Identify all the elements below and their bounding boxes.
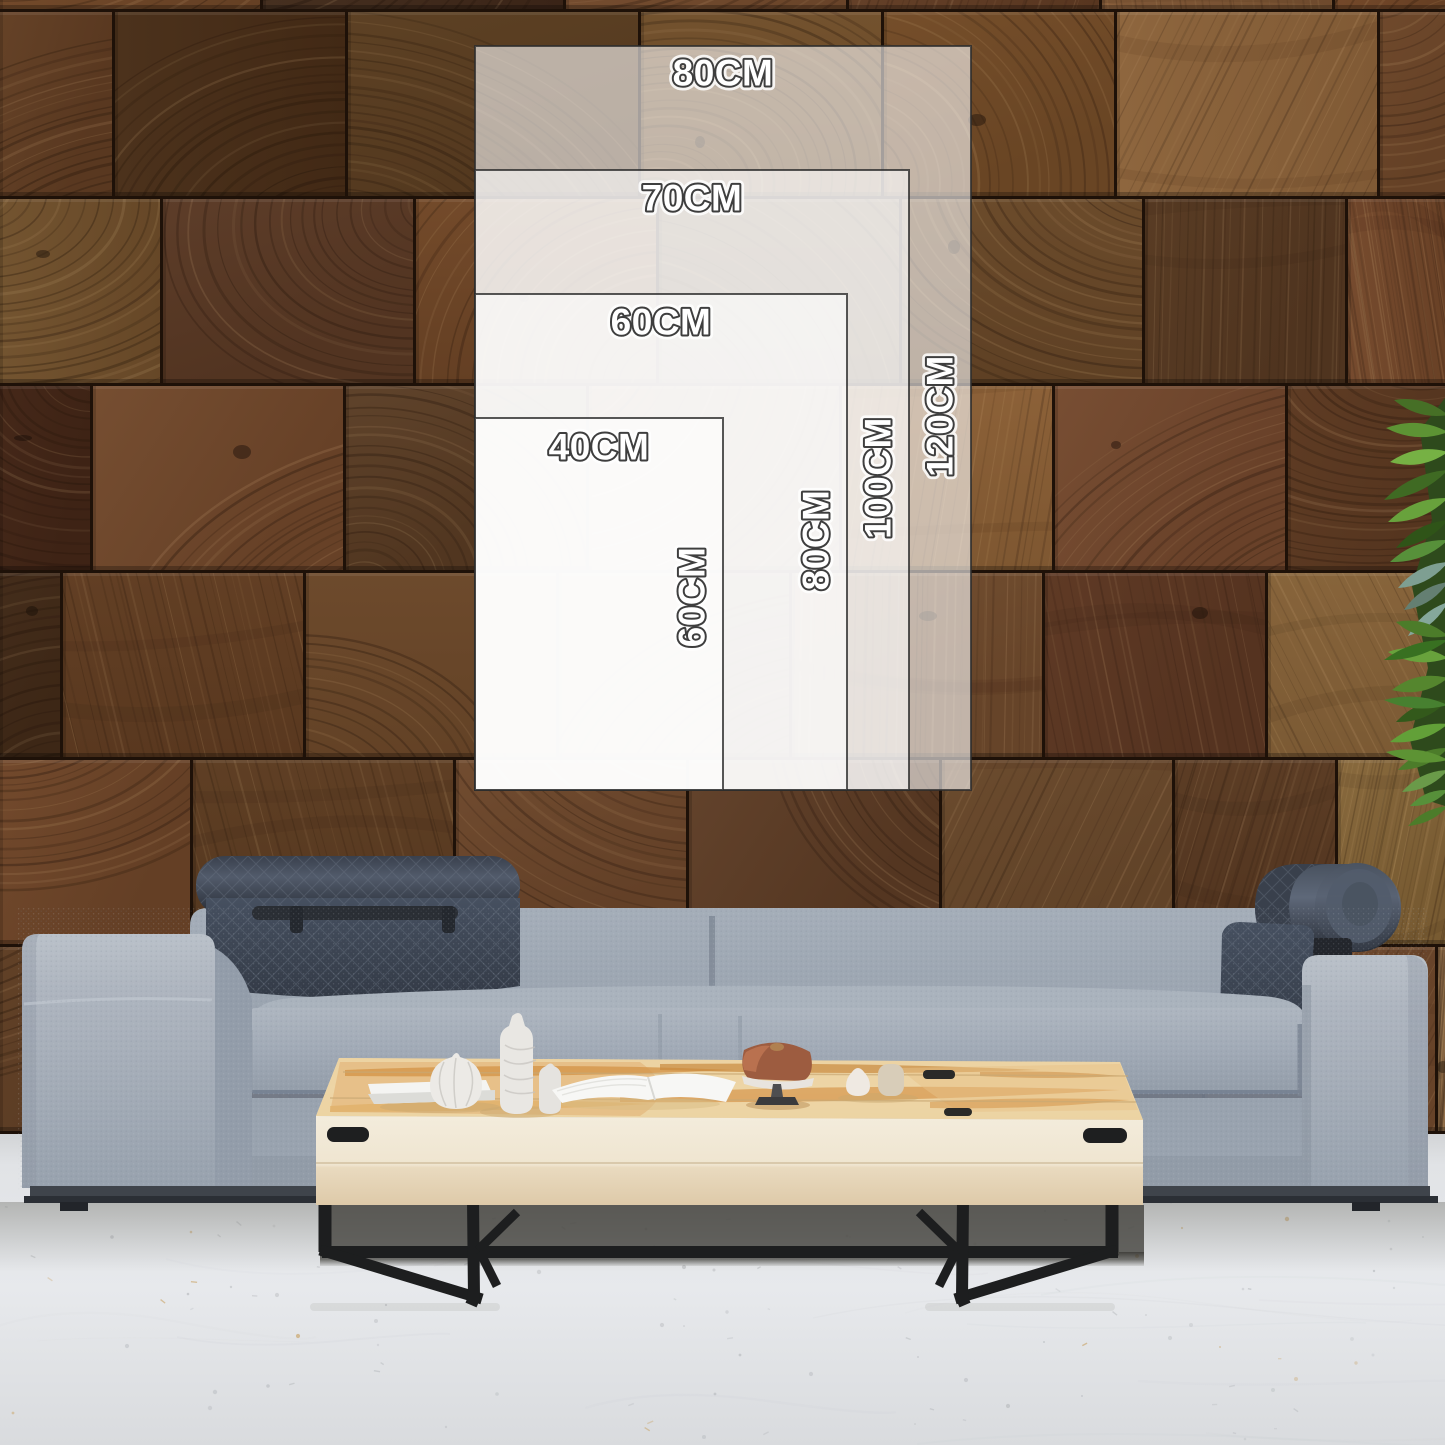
svg-text:60CM: 60CM bbox=[611, 302, 712, 343]
svg-text:70CM: 70CM bbox=[642, 178, 743, 219]
svg-text:80CM: 80CM bbox=[673, 53, 774, 94]
svg-text:80CM: 80CM bbox=[796, 490, 837, 591]
svg-text:60CM: 60CM bbox=[672, 547, 713, 648]
svg-text:100CM: 100CM bbox=[858, 417, 899, 539]
svg-text:120CM: 120CM bbox=[920, 355, 961, 477]
svg-text:40CM: 40CM bbox=[549, 427, 650, 468]
